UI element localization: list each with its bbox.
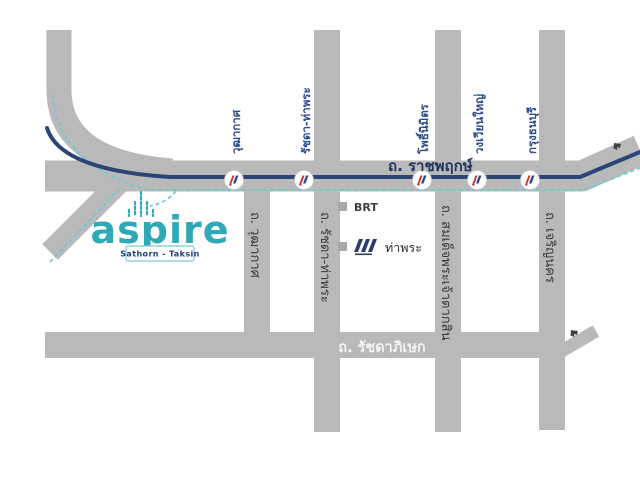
bottom-road-label: ถ. รัชดาภิเษก <box>338 339 425 356</box>
brand-subtitle: Sathorn - Taksin <box>120 250 199 259</box>
station-label-pho-nimit: โพธิ์นิมิตร <box>415 103 431 155</box>
brt-hatch-logo-icon <box>354 239 377 255</box>
vroad-label-taksin: ถ. สมเด็จพระเจ้าตากสิน <box>438 205 456 341</box>
legend-square-icon <box>338 242 347 251</box>
brt-station-marker <box>295 171 314 190</box>
location-map: วุฒากาศ รัชดา-ท่าพระ โพธิ์นิมิตร วงเวียน… <box>0 0 640 480</box>
vroad-label-charoen-nakhon: ถ. เจริญนคร <box>542 212 557 283</box>
station-circle <box>225 171 244 190</box>
vroad-label-wutthakat: ถ. วุฒากาศ <box>247 212 262 279</box>
station-label-wongwian-yai: วงเวียนใหญ่ <box>472 94 486 154</box>
station-label-wutthakat: วุฒากาศ <box>229 109 244 154</box>
station-labels: วุฒากาศ รัชดา-ท่าพระ โพธิ์นิมิตร วงเวียน… <box>229 87 540 155</box>
main-road-label: ถ. ราชพฤกษ์ <box>388 157 473 175</box>
left-curve-road <box>59 30 172 171</box>
legend-label-thapra: ท่าพระ <box>385 240 422 255</box>
legend-square-icon <box>338 202 347 211</box>
legend: BRT ท่าพระ <box>338 201 422 255</box>
vroad-label-ratchada-thapra: ถ. รัชดา-ท่าพระ <box>317 212 332 303</box>
station-circle <box>295 171 314 190</box>
station-label-krung-thonburi: กรุงธนบุรี <box>525 106 540 154</box>
brt-station-marker <box>521 171 540 190</box>
brt-station-marker <box>225 171 244 190</box>
bottom-right-stub-road <box>560 331 596 352</box>
station-label-ratchada-thapra: รัชดา-ท่าพระ <box>299 87 313 154</box>
station-circle <box>521 171 540 190</box>
legend-label-brt: BRT <box>354 201 378 214</box>
project-callout-dashed-line <box>150 191 176 206</box>
